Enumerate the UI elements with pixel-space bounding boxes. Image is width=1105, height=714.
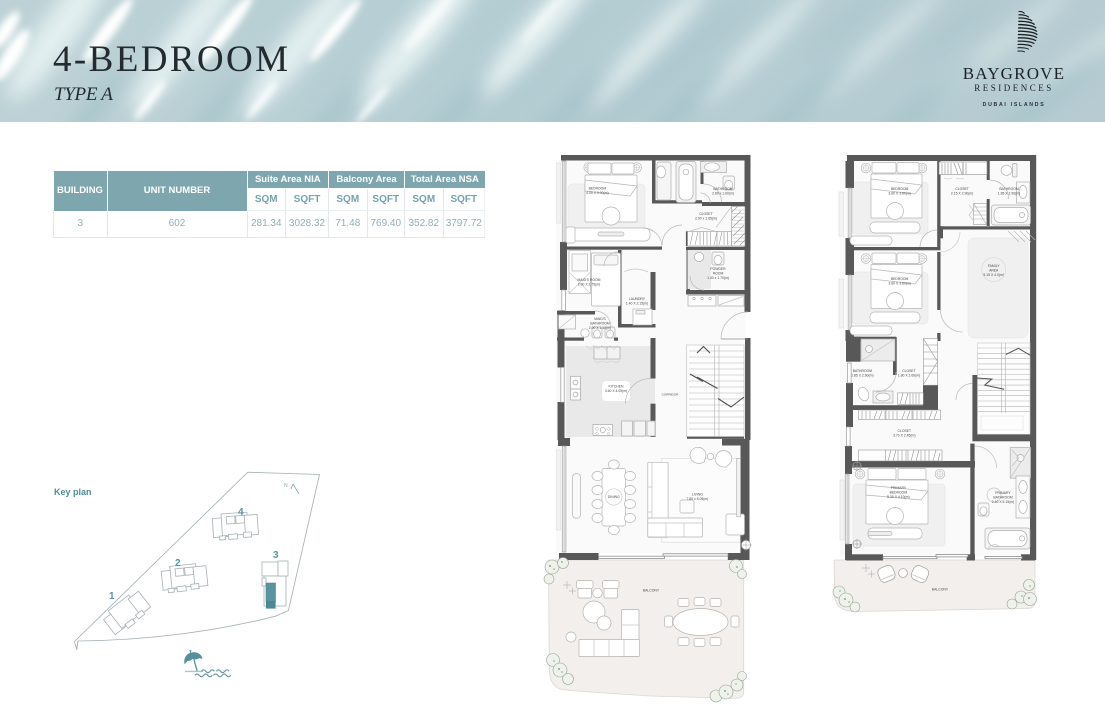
svg-text:PRIMARY: PRIMARY [995,491,1011,495]
svg-text:MAID'S ROOM: MAID'S ROOM [578,278,601,282]
svg-text:1.85 X 2.90(m): 1.85 X 2.90(m) [998,192,1020,196]
svg-text:BEDROOM: BEDROOM [890,491,908,495]
svg-text:2.00 x 1.65(m): 2.00 x 1.65(m) [695,217,717,221]
svg-text:3.70 X 2.45(m): 3.70 X 2.45(m) [893,434,915,438]
svg-text:5.15 X 4.0(m): 5.15 X 4.0(m) [983,273,1004,277]
svg-text:BALCONY: BALCONY [932,588,949,592]
svg-text:7.80 x 5.05(m): 7.80 x 5.05(m) [686,497,708,501]
svg-text:2: 2 [175,558,181,569]
svg-text:3.60 X 4.05(m): 3.60 X 4.05(m) [605,389,627,393]
svg-text:BEDROOM: BEDROOM [891,277,909,281]
svg-text:1.40 x 1.70(m): 1.40 x 1.70(m) [707,276,729,280]
svg-text:CLOSET: CLOSET [699,212,713,216]
svg-text:ROOM: ROOM [713,272,724,276]
svg-text:N: N [284,483,288,489]
svg-text:CORRIDOR: CORRIDOR [662,393,680,397]
svg-text:CLOSET: CLOSET [955,187,969,191]
svg-text:MAID'S: MAID'S [594,317,606,321]
svg-text:1: 1 [109,591,115,602]
svg-text:KITCHEN: KITCHEN [609,385,624,389]
svg-text:2.00 X 2.75(m): 2.00 X 2.75(m) [578,283,600,287]
svg-text:LIVING: LIVING [692,493,703,497]
svg-text:BATHROOM: BATHROOM [853,369,873,373]
svg-text:CLOSET: CLOSET [902,369,916,373]
svg-text:Key plan: Key plan [54,487,92,497]
svg-text:LAUNDRY: LAUNDRY [629,297,646,301]
svg-text:4: 4 [238,507,244,518]
svg-text:2.40 X 5.15(m): 2.40 X 5.15(m) [992,500,1014,504]
svg-text:BEDROOM: BEDROOM [891,187,909,191]
svg-text:BALCONY: BALCONY [643,589,660,593]
svg-text:PRIMARY: PRIMARY [891,486,907,490]
svg-text:BATHROOM: BATHROOM [993,496,1013,500]
svg-text:BATHROOM: BATHROOM [999,187,1019,191]
svg-text:1.80 X 2.60(m): 1.80 X 2.60(m) [898,374,920,378]
svg-text:3.60 X 3.80(m): 3.60 X 3.80(m) [888,282,910,286]
svg-text:5.30 X 4.10(m): 5.30 X 4.10(m) [887,495,909,499]
svg-text:2.60 x 1.60(m): 2.60 x 1.60(m) [712,192,734,196]
svg-text:BATHROOM: BATHROOM [713,187,733,191]
svg-text:3.60 X 3.80(m): 3.60 X 3.80(m) [888,192,910,196]
svg-text:1.40 X 2.15(m): 1.40 X 2.15(m) [626,302,648,306]
svg-text:3: 3 [273,550,279,561]
svg-text:DINING: DINING [608,495,620,499]
svg-text:POWDER: POWDER [710,267,726,271]
svg-text:CLOSET: CLOSET [898,429,912,433]
svg-text:BEDROOM: BEDROOM [589,187,607,191]
svg-text:2.00 X 1.50(m): 2.00 X 1.50(m) [589,326,611,330]
svg-text:FAMILY: FAMILY [988,264,1001,268]
svg-text:BATHROOM: BATHROOM [590,322,610,326]
svg-text:1.85 X 2.60(m): 1.85 X 2.60(m) [851,374,873,378]
svg-text:2.15 X 2.90(m): 2.15 X 2.90(m) [951,192,973,196]
svg-text:AREA: AREA [989,269,999,273]
svg-text:4.00 X 3.00(m): 4.00 X 3.00(m) [586,191,608,195]
